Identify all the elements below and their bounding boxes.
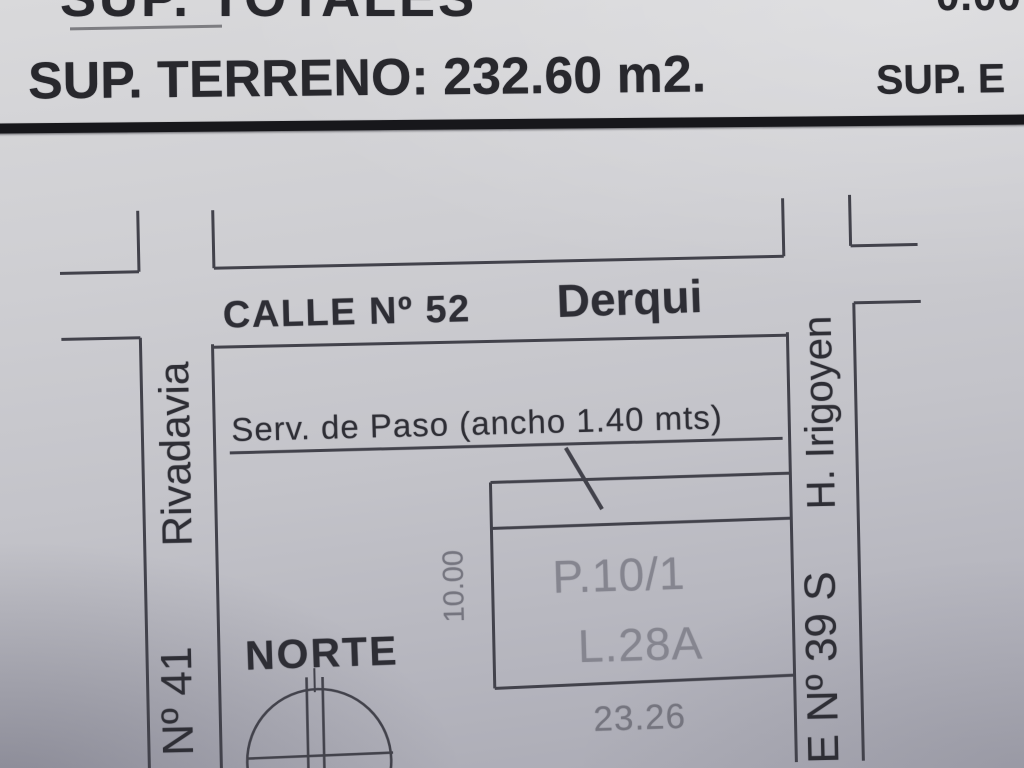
dimension-south-23-26: 23.26 [593,697,687,740]
se-corner-horizontal [854,301,921,302]
street-label-rivadavia: Rivadavia [150,361,202,546]
sw-corner-horizontal [61,338,140,340]
parcel-id-line1: P.10/1 [552,546,687,604]
irigoyen-east-edge [854,303,864,768]
parcel-left-edge [490,482,494,688]
street-label-h-irigoyen: H. Irigoyen [796,315,845,509]
scanned-survey-plan-photo: SUP. TOTALES 0.00 SUP. TERRENO: 232.60 m… [0,0,1024,768]
north-label: NORTE [244,627,399,679]
parcel-bottom-edge [495,675,795,688]
compass-horizontal-axis [247,753,393,759]
ne-corner-vertical [850,195,851,246]
plat-drawing: CALLE Nº 52 Derqui Rivadavia E Nº 41 H. … [0,0,1024,768]
dimension-west-10-00: 10.00 [437,550,472,623]
street-label-calle-39s: E Nº 39 S [795,571,849,764]
nw-corner-vertical [138,211,139,272]
north-block-left [213,210,214,268]
street-label-derqui: Derqui [556,269,703,328]
north-block-right [783,198,784,256]
rivadavia-west-edge [140,338,149,768]
street-label-calle-41: E Nº 41 [152,646,205,768]
block-left-edge [213,344,222,768]
block-top-edge [213,335,788,347]
block-right-edge [787,332,796,768]
nw-corner-horizontal [60,272,139,274]
north-block-bottom [214,256,784,268]
parcel-strip-divider [491,518,791,528]
compass-needle-right [323,677,325,768]
street-label-calle-52: CALLE Nº 52 [222,288,471,337]
parcel-top-edge [490,473,790,482]
parcel-id-line2: L.28A [577,616,704,674]
ne-corner-horizontal [851,244,918,245]
